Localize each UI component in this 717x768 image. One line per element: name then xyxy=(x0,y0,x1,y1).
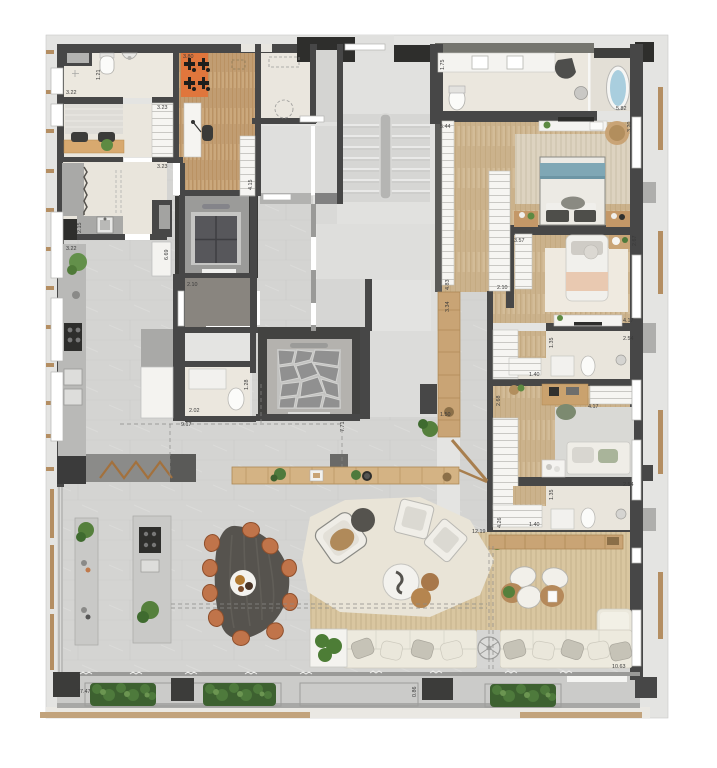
svg-text:3.57: 3.57 xyxy=(514,238,525,244)
svg-text:3.22: 3.22 xyxy=(66,246,77,252)
svg-text:3.23: 3.23 xyxy=(157,105,168,111)
svg-text:10.63: 10.63 xyxy=(612,664,626,670)
svg-text:3.34: 3.34 xyxy=(445,302,451,313)
svg-text:2.02: 2.02 xyxy=(189,408,200,414)
svg-text:3.22: 3.22 xyxy=(66,90,77,96)
svg-text:3.80: 3.80 xyxy=(183,54,194,60)
svg-text:5.44: 5.44 xyxy=(440,124,451,130)
svg-text:1.35: 1.35 xyxy=(549,490,555,501)
svg-text:3.20: 3.20 xyxy=(627,122,633,133)
svg-text:1.75: 1.75 xyxy=(440,60,446,71)
svg-text:1.28: 1.28 xyxy=(244,380,250,391)
svg-text:4.83: 4.83 xyxy=(445,280,451,291)
svg-text:4.17: 4.17 xyxy=(623,318,634,324)
svg-text:5.82: 5.82 xyxy=(616,106,627,112)
svg-text:1.50: 1.50 xyxy=(440,412,451,418)
svg-text:9.17: 9.17 xyxy=(181,422,192,428)
svg-text:2.10: 2.10 xyxy=(187,282,198,288)
svg-text:1.40: 1.40 xyxy=(529,372,540,378)
svg-text:2.67: 2.67 xyxy=(632,236,638,247)
svg-text:4.26: 4.26 xyxy=(497,518,503,529)
svg-text:2.68: 2.68 xyxy=(496,396,502,407)
svg-text:2.15: 2.15 xyxy=(77,223,83,234)
svg-text:12.19: 12.19 xyxy=(472,529,486,535)
svg-text:1.40: 1.40 xyxy=(529,522,540,528)
svg-text:17.47: 17.47 xyxy=(77,689,91,695)
svg-text:7.71: 7.71 xyxy=(340,422,346,433)
svg-text:3.23: 3.23 xyxy=(157,164,168,170)
svg-text:2.54: 2.54 xyxy=(623,482,634,488)
svg-text:4.15: 4.15 xyxy=(248,180,254,191)
svg-text:2.54: 2.54 xyxy=(623,336,634,342)
svg-text:4.17: 4.17 xyxy=(588,404,599,410)
svg-text:6.69: 6.69 xyxy=(164,250,170,261)
svg-text:2.10: 2.10 xyxy=(497,285,508,291)
svg-text:1.35: 1.35 xyxy=(549,338,555,349)
svg-text:0.86: 0.86 xyxy=(412,687,418,698)
svg-text:1.21: 1.21 xyxy=(96,70,102,81)
